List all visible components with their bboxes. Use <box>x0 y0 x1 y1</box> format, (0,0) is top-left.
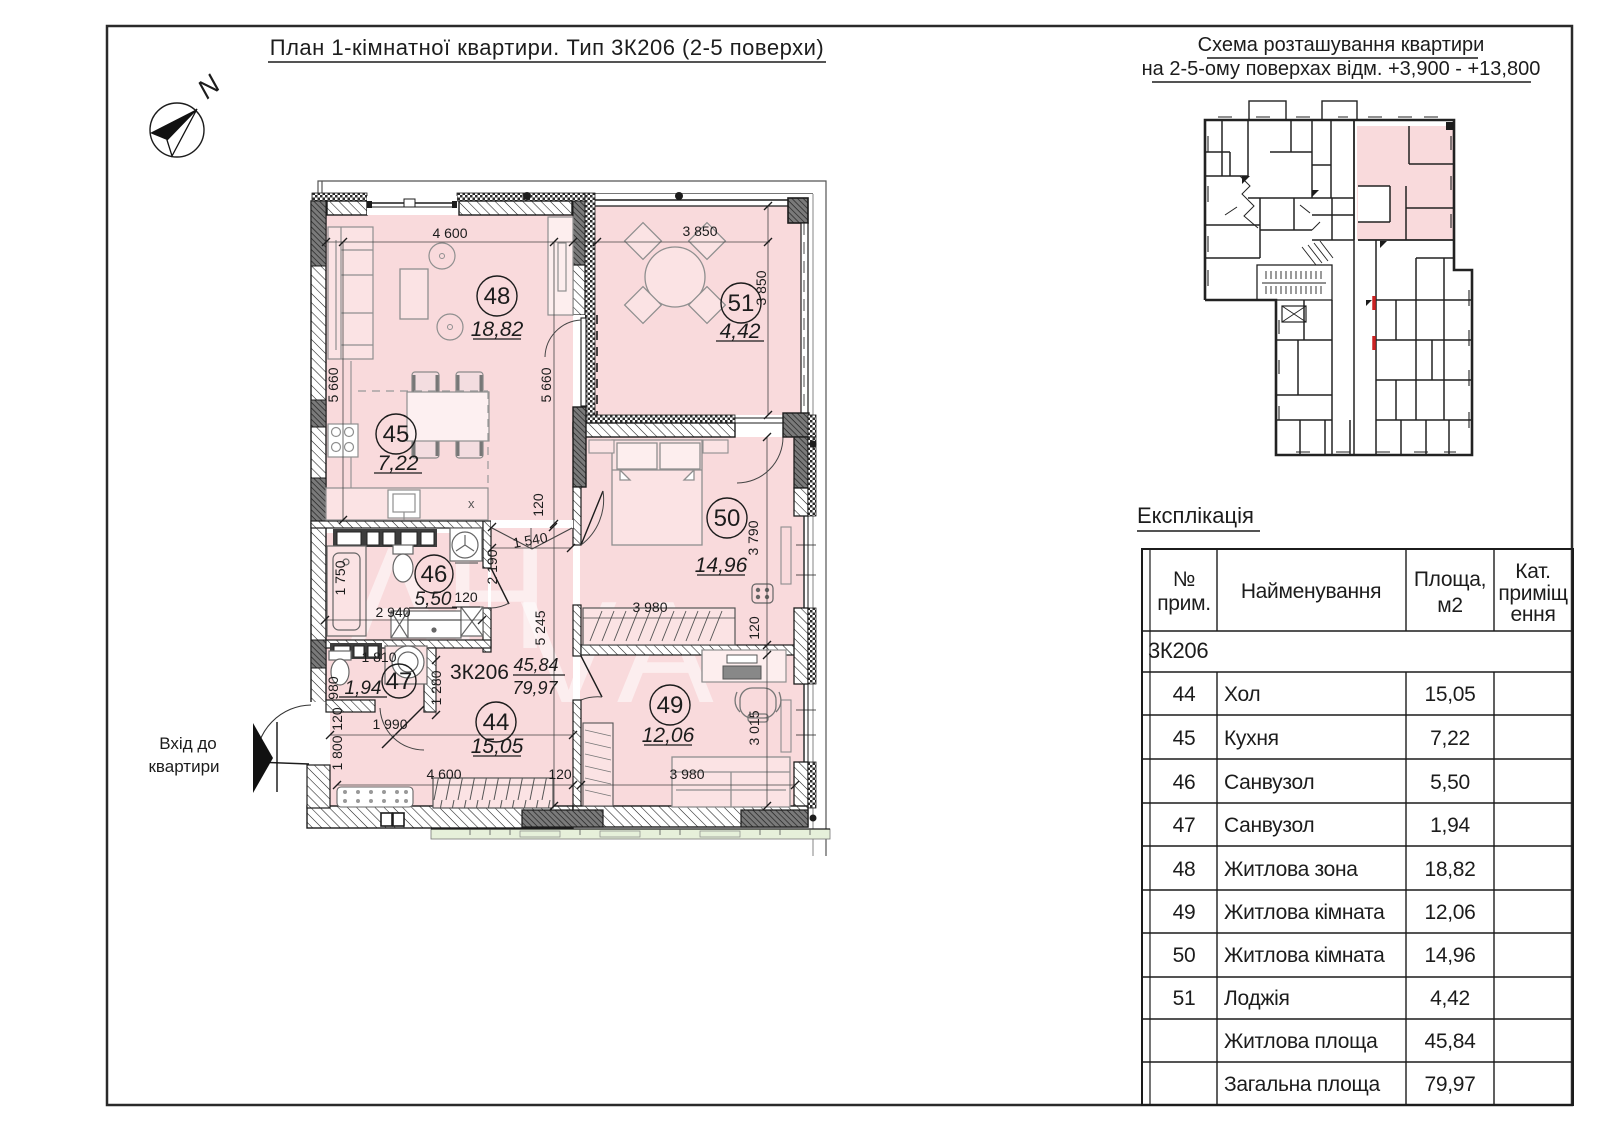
svg-text:Хол: Хол <box>1224 683 1260 706</box>
svg-text:Санвузол: Санвузол <box>1224 771 1314 794</box>
svg-text:1 990: 1 990 <box>372 716 407 732</box>
svg-text:14,96: 14,96 <box>695 554 748 577</box>
svg-text:49: 49 <box>657 692 684 719</box>
svg-text:4 600: 4 600 <box>432 225 467 241</box>
svg-text:120: 120 <box>530 493 546 517</box>
svg-text:5 660: 5 660 <box>325 367 341 402</box>
svg-text:5 660: 5 660 <box>538 367 554 402</box>
svg-text:м2: м2 <box>1437 594 1463 617</box>
svg-text:45,84: 45,84 <box>513 655 558 675</box>
svg-text:45: 45 <box>1173 727 1196 750</box>
svg-text:Житлова кімната: Житлова кімната <box>1224 901 1385 924</box>
svg-text:2 940: 2 940 <box>375 604 410 620</box>
svg-text:4,42: 4,42 <box>720 320 761 343</box>
svg-text:3К206: 3К206 <box>1148 638 1208 663</box>
svg-text:48: 48 <box>484 283 511 310</box>
svg-text:3 790: 3 790 <box>745 520 761 555</box>
svg-text:980: 980 <box>325 676 341 700</box>
svg-text:15,05: 15,05 <box>1424 683 1475 706</box>
svg-text:№: № <box>1173 568 1195 591</box>
svg-text:4 600: 4 600 <box>426 766 461 782</box>
svg-text:46: 46 <box>421 561 448 588</box>
svg-text:x: x <box>468 496 475 511</box>
svg-text:4,42: 4,42 <box>1430 987 1470 1010</box>
svg-text:50: 50 <box>1173 944 1196 967</box>
svg-text:1 280: 1 280 <box>428 670 444 705</box>
svg-text:18,82: 18,82 <box>1424 858 1475 881</box>
svg-text:47: 47 <box>386 668 413 695</box>
svg-text:44: 44 <box>483 709 510 736</box>
svg-text:120: 120 <box>329 707 345 731</box>
svg-text:3 850: 3 850 <box>682 223 717 239</box>
svg-text:79,97: 79,97 <box>1424 1073 1475 1096</box>
svg-text:79,97: 79,97 <box>512 678 558 698</box>
svg-text:на 2-5-ому поверхах відм. +3,9: на 2-5-ому поверхах відм. +3,900 - +13,8… <box>1142 58 1541 80</box>
svg-text:51: 51 <box>1173 987 1196 1010</box>
svg-text:15,05: 15,05 <box>471 735 524 758</box>
svg-text:Вхід до: Вхід до <box>159 734 216 753</box>
svg-text:Лоджія: Лоджія <box>1224 987 1290 1010</box>
svg-text:Площа,: Площа, <box>1414 568 1486 591</box>
svg-text:3К206: 3К206 <box>450 661 509 684</box>
svg-text:Житлова площа: Житлова площа <box>1224 1030 1378 1053</box>
svg-text:Житлова зона: Житлова зона <box>1224 858 1358 881</box>
svg-text:Житлова кімната: Житлова кімната <box>1224 944 1385 967</box>
svg-text:приміщ: приміщ <box>1498 582 1567 605</box>
svg-text:5,50: 5,50 <box>415 589 452 610</box>
svg-text:квартири: квартири <box>148 757 219 776</box>
svg-text:5,50: 5,50 <box>1430 771 1470 794</box>
svg-text:3 015: 3 015 <box>746 710 762 745</box>
svg-text:50: 50 <box>714 505 741 532</box>
svg-text:1 810: 1 810 <box>361 649 396 665</box>
svg-text:14,96: 14,96 <box>1424 944 1475 967</box>
svg-text:120: 120 <box>746 616 762 640</box>
svg-text:45: 45 <box>383 421 410 448</box>
svg-text:49: 49 <box>1173 901 1196 924</box>
svg-text:18,82: 18,82 <box>471 318 524 341</box>
svg-text:Кат.: Кат. <box>1515 560 1550 583</box>
svg-text:47: 47 <box>1173 814 1196 837</box>
svg-text:Загальна площа: Загальна площа <box>1224 1073 1380 1096</box>
svg-text:5 245: 5 245 <box>532 610 548 645</box>
svg-text:Експлікація: Експлікація <box>1137 503 1254 528</box>
svg-text:Схема розташування квартири: Схема розташування квартири <box>1198 34 1485 56</box>
svg-text:2 190: 2 190 <box>484 549 500 584</box>
svg-text:12,06: 12,06 <box>642 724 695 747</box>
svg-text:120: 120 <box>454 589 478 605</box>
svg-text:1,94: 1,94 <box>345 678 382 699</box>
svg-text:3 980: 3 980 <box>669 766 704 782</box>
svg-text:Найменування: Найменування <box>1241 580 1381 603</box>
svg-text:1,94: 1,94 <box>1430 814 1470 837</box>
svg-text:прим.: прим. <box>1157 592 1211 615</box>
svg-text:3 980: 3 980 <box>632 599 667 615</box>
svg-text:46: 46 <box>1173 771 1196 794</box>
svg-text:44: 44 <box>1173 683 1196 706</box>
svg-text:План 1-кімнатної квартири. Тип: План 1-кімнатної квартири. Тип 3К206 (2-… <box>270 35 824 60</box>
svg-text:51: 51 <box>728 290 755 317</box>
svg-text:1 750: 1 750 <box>332 560 348 595</box>
svg-text:120: 120 <box>548 766 572 782</box>
svg-text:7,22: 7,22 <box>378 452 419 475</box>
svg-text:7,22: 7,22 <box>1430 727 1470 750</box>
svg-text:1 800: 1 800 <box>329 735 345 770</box>
svg-text:45,84: 45,84 <box>1424 1030 1476 1053</box>
svg-text:12,06: 12,06 <box>1424 901 1475 924</box>
svg-text:Санвузол: Санвузол <box>1224 814 1314 837</box>
svg-text:Кухня: Кухня <box>1224 727 1279 750</box>
svg-text:48: 48 <box>1173 858 1196 881</box>
svg-text:ення: ення <box>1510 603 1555 626</box>
